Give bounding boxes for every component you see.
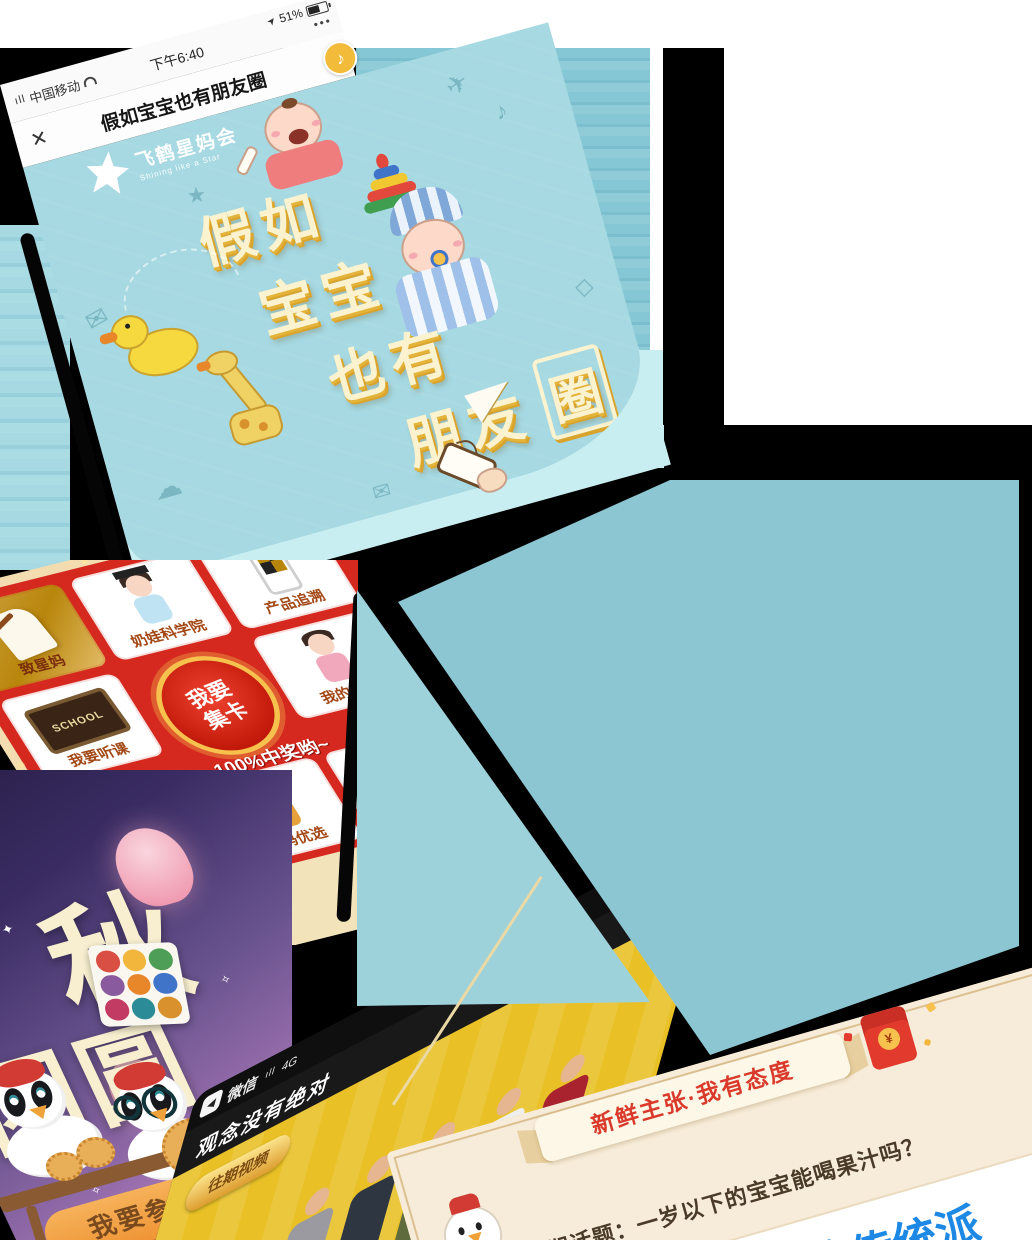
star-logo-icon [85,151,131,197]
pk-side-traditional: 传统派 [845,1199,985,1240]
star-sparkle-icon: ✦ [0,920,17,939]
doodle-icon: ✈ [439,65,475,103]
doodle-icon: ♪ [492,97,511,127]
network-label: 4G [280,1051,299,1073]
red-envelope-icon: ¥ [859,1005,919,1072]
mooncake-box-icon [87,942,191,1027]
carrier-label: 中国移动 [27,75,82,107]
star-sparkle-icon: ✧ [218,972,234,987]
signal-icon: ıll [264,1065,277,1082]
white-smear-right [724,48,1032,425]
collage-canvas: ✉ ♪ ✈ ☁ ✉ ◇ ★ 飞鹤星妈会 Shining like a Star [0,0,1032,1240]
doodle-icon: ☁ [150,468,186,507]
doodle-icon: ✉ [369,477,394,507]
giraffe-icon [182,344,295,464]
location-arrow-icon: ➤ [265,15,279,28]
chicken-mascot-icon [432,1189,513,1240]
guest-figure [255,1176,346,1240]
black-smear-bar [663,48,724,425]
headline-boxed-char: 圈 [531,343,619,441]
pk-label: PK [747,1228,842,1240]
signal-icon: ıll [13,93,27,107]
topic-label: 下期话题： [523,1214,640,1240]
coin-icon: ¥ [875,1025,902,1052]
wifi-icon [82,75,97,87]
menu-item-lessons[interactable]: SCHOOL 我要听课 [0,672,165,782]
white-smear-strip [650,48,663,357]
doodle-icon: ◇ [575,272,594,301]
